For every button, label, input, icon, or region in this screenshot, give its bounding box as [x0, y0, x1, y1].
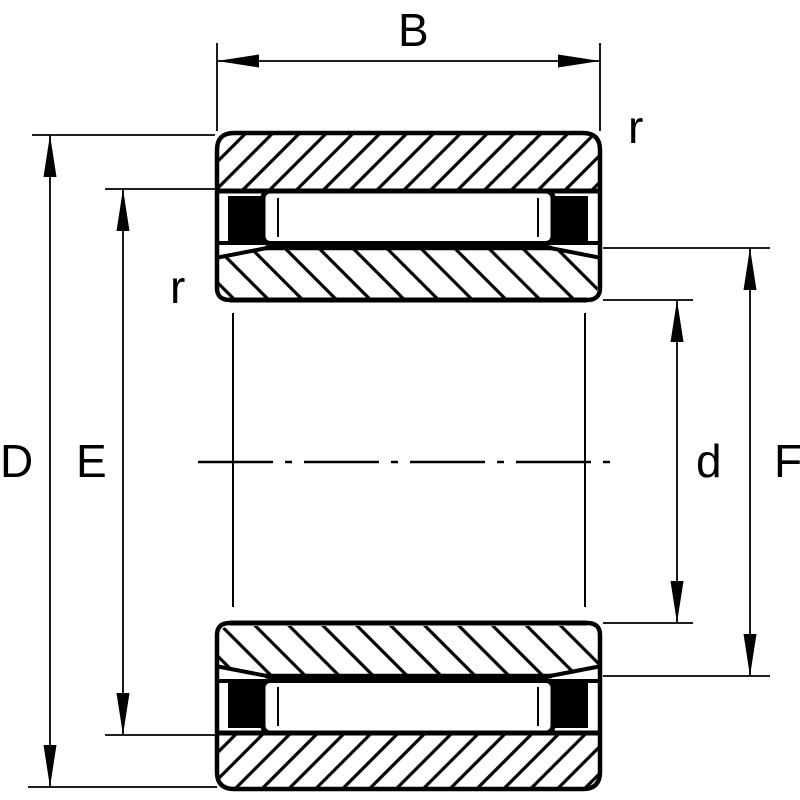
- seal-top-right: [553, 196, 588, 241]
- d-outer-arrow-bottom: [44, 745, 57, 787]
- seal-top-left: [228, 196, 263, 241]
- dimension-d-outer: D: [0, 135, 217, 787]
- e-arrow-bottom: [117, 693, 130, 735]
- label-e: E: [76, 435, 107, 487]
- seal-bottom-left: [228, 683, 263, 728]
- e-arrow-top: [117, 189, 130, 231]
- label-d-outer: D: [0, 435, 33, 487]
- label-b: B: [398, 4, 429, 56]
- d-bore-arrow-bottom: [671, 581, 684, 623]
- bearing-drawing: B D E d F r r: [0, 0, 800, 800]
- needle-roller-top: [263, 191, 553, 244]
- b-arrow-left: [217, 55, 259, 68]
- outer-ring-section-top: [217, 135, 600, 189]
- seal-bottom-right: [553, 683, 588, 728]
- d-bore-arrow-top: [671, 300, 684, 342]
- label-d-bore: d: [696, 435, 722, 487]
- label-r-right: r: [628, 101, 643, 153]
- inner-ring-section-top: [218, 246, 598, 298]
- f-arrow-bottom: [744, 634, 757, 676]
- b-arrow-right: [558, 55, 600, 68]
- label-r-left: r: [170, 261, 185, 313]
- f-arrow-top: [744, 248, 757, 290]
- dimension-b: B: [217, 4, 600, 131]
- inner-ring-section-bottom: [218, 626, 598, 678]
- bearing-cross-section-svg: B D E d F r r: [0, 0, 800, 800]
- label-f: F: [774, 435, 800, 487]
- dimension-e: E: [76, 189, 216, 735]
- dimension-d-bore: d: [603, 300, 722, 623]
- outer-ring-section-bottom: [217, 733, 600, 787]
- d-outer-arrow-top: [44, 135, 57, 177]
- needle-roller-bottom: [263, 681, 553, 734]
